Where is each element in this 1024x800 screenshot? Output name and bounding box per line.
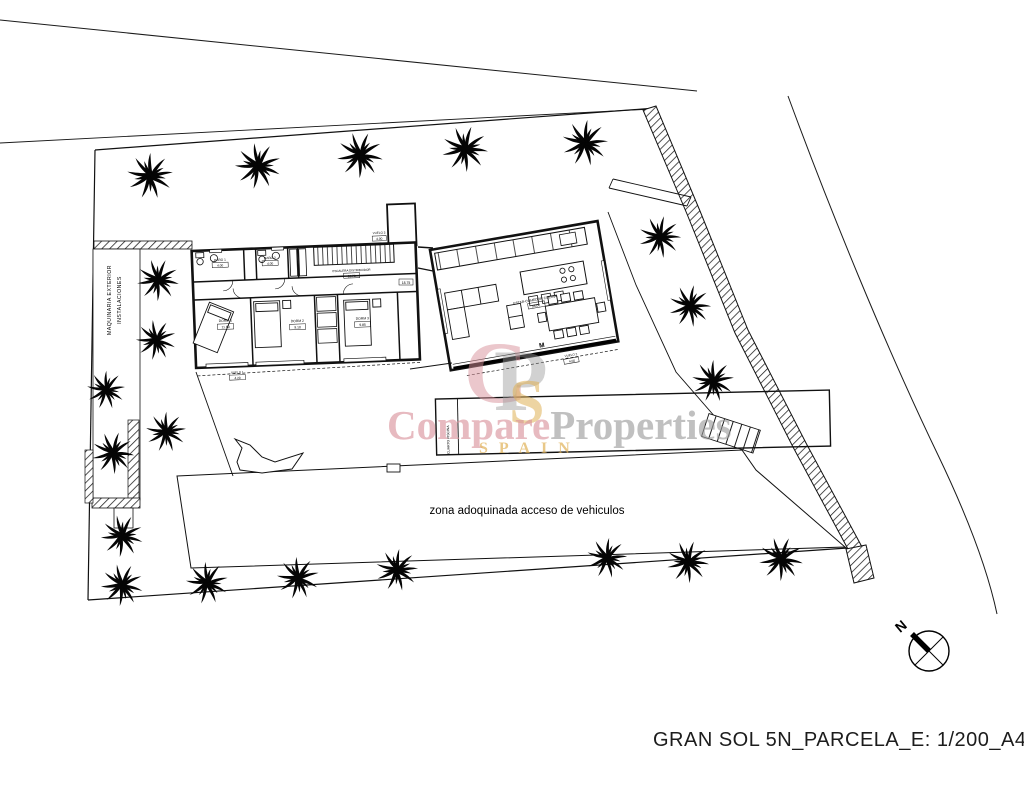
area-value: 4.00 xyxy=(569,359,576,364)
room-label: DORM 3 xyxy=(356,316,369,321)
zona-label: zona adoquinada acceso de vehiculos xyxy=(429,505,624,517)
pool-room-divider xyxy=(457,399,458,455)
porch xyxy=(387,203,417,246)
entrance-arrow-shape xyxy=(235,439,303,473)
living-wing: ESTAR-COMEDOR COCINA 55.00 M VUELO 2 4.0… xyxy=(430,221,621,384)
drawing-title: GRAN SOL 5N_PARCELA_E: 1/200_A4 xyxy=(653,729,1024,752)
area-value: 4.00 xyxy=(267,262,274,266)
area-value: 4.00 xyxy=(376,237,383,241)
room-label: DORM 1 xyxy=(219,319,232,324)
exterior-steps xyxy=(702,414,761,454)
palm-tree-icon xyxy=(636,212,685,261)
access-diagonal-line xyxy=(196,372,233,476)
area-value: 9.85 xyxy=(359,323,366,327)
deck-band-line xyxy=(609,188,687,206)
palm-tree-icon xyxy=(553,110,618,175)
utility-hatch-bottom xyxy=(92,498,140,508)
utility-hatch-top xyxy=(94,241,192,249)
area-value: 4.20 xyxy=(234,376,241,380)
bedroom-wing: VUELO 3 4.00 xyxy=(188,203,421,381)
palm-tree-icon xyxy=(660,276,719,335)
utility-hatch-right xyxy=(128,420,139,500)
north-arrow: N xyxy=(892,617,949,671)
east-garden-strip xyxy=(608,179,743,449)
palm-tree-icon xyxy=(94,557,150,613)
staircase xyxy=(314,244,395,265)
toilet-icon xyxy=(197,258,204,265)
machinery-label-line1: MAQUINARIA EXTERIOR xyxy=(107,265,113,335)
north-label: N xyxy=(892,617,910,636)
palm-tree-icon xyxy=(329,124,392,187)
palm-tree-icon xyxy=(689,357,738,406)
palm-tree-icon xyxy=(146,412,186,452)
north-offset-line xyxy=(0,109,652,143)
boundary-hatch-left xyxy=(85,450,93,503)
nightstand xyxy=(373,299,381,307)
area-value: 4.00 xyxy=(217,263,224,267)
machinery-label-line2: INSTALACIONES xyxy=(117,276,123,324)
palm-tree-icon xyxy=(227,134,290,197)
nightstand xyxy=(283,300,291,308)
room-label: VUELO 3 xyxy=(373,231,386,235)
palm-tree-icon xyxy=(437,121,493,177)
north-road-line xyxy=(0,20,697,91)
gate-marker xyxy=(387,464,400,472)
area-value: 18.75 xyxy=(402,281,411,285)
pool-room-label: CUARTO PISCINA xyxy=(446,425,451,455)
area-value: 11.60 xyxy=(221,325,229,329)
area-value: 9.10 xyxy=(294,325,301,329)
toilet-icon xyxy=(196,253,204,258)
room-label: VUELO 1 xyxy=(231,370,244,374)
room-label: BAÑO 2 xyxy=(264,255,276,260)
area-value: 16.70 xyxy=(348,274,356,278)
palm-tree-icon xyxy=(127,153,173,199)
site-plan-drawing: zona adoquinada acceso de vehiculos MAQU… xyxy=(0,0,1024,800)
toilet-icon xyxy=(258,250,266,255)
terrace-edge xyxy=(410,363,452,369)
room-label: BAÑO 1 xyxy=(214,257,226,262)
kitchen-sink xyxy=(559,232,577,246)
boundary-hatch-end-cap xyxy=(846,545,874,583)
site-plan-page: zona adoquinada acceso de vehiculos MAQU… xyxy=(0,0,1024,800)
room-label: DORM 2 xyxy=(291,319,304,324)
